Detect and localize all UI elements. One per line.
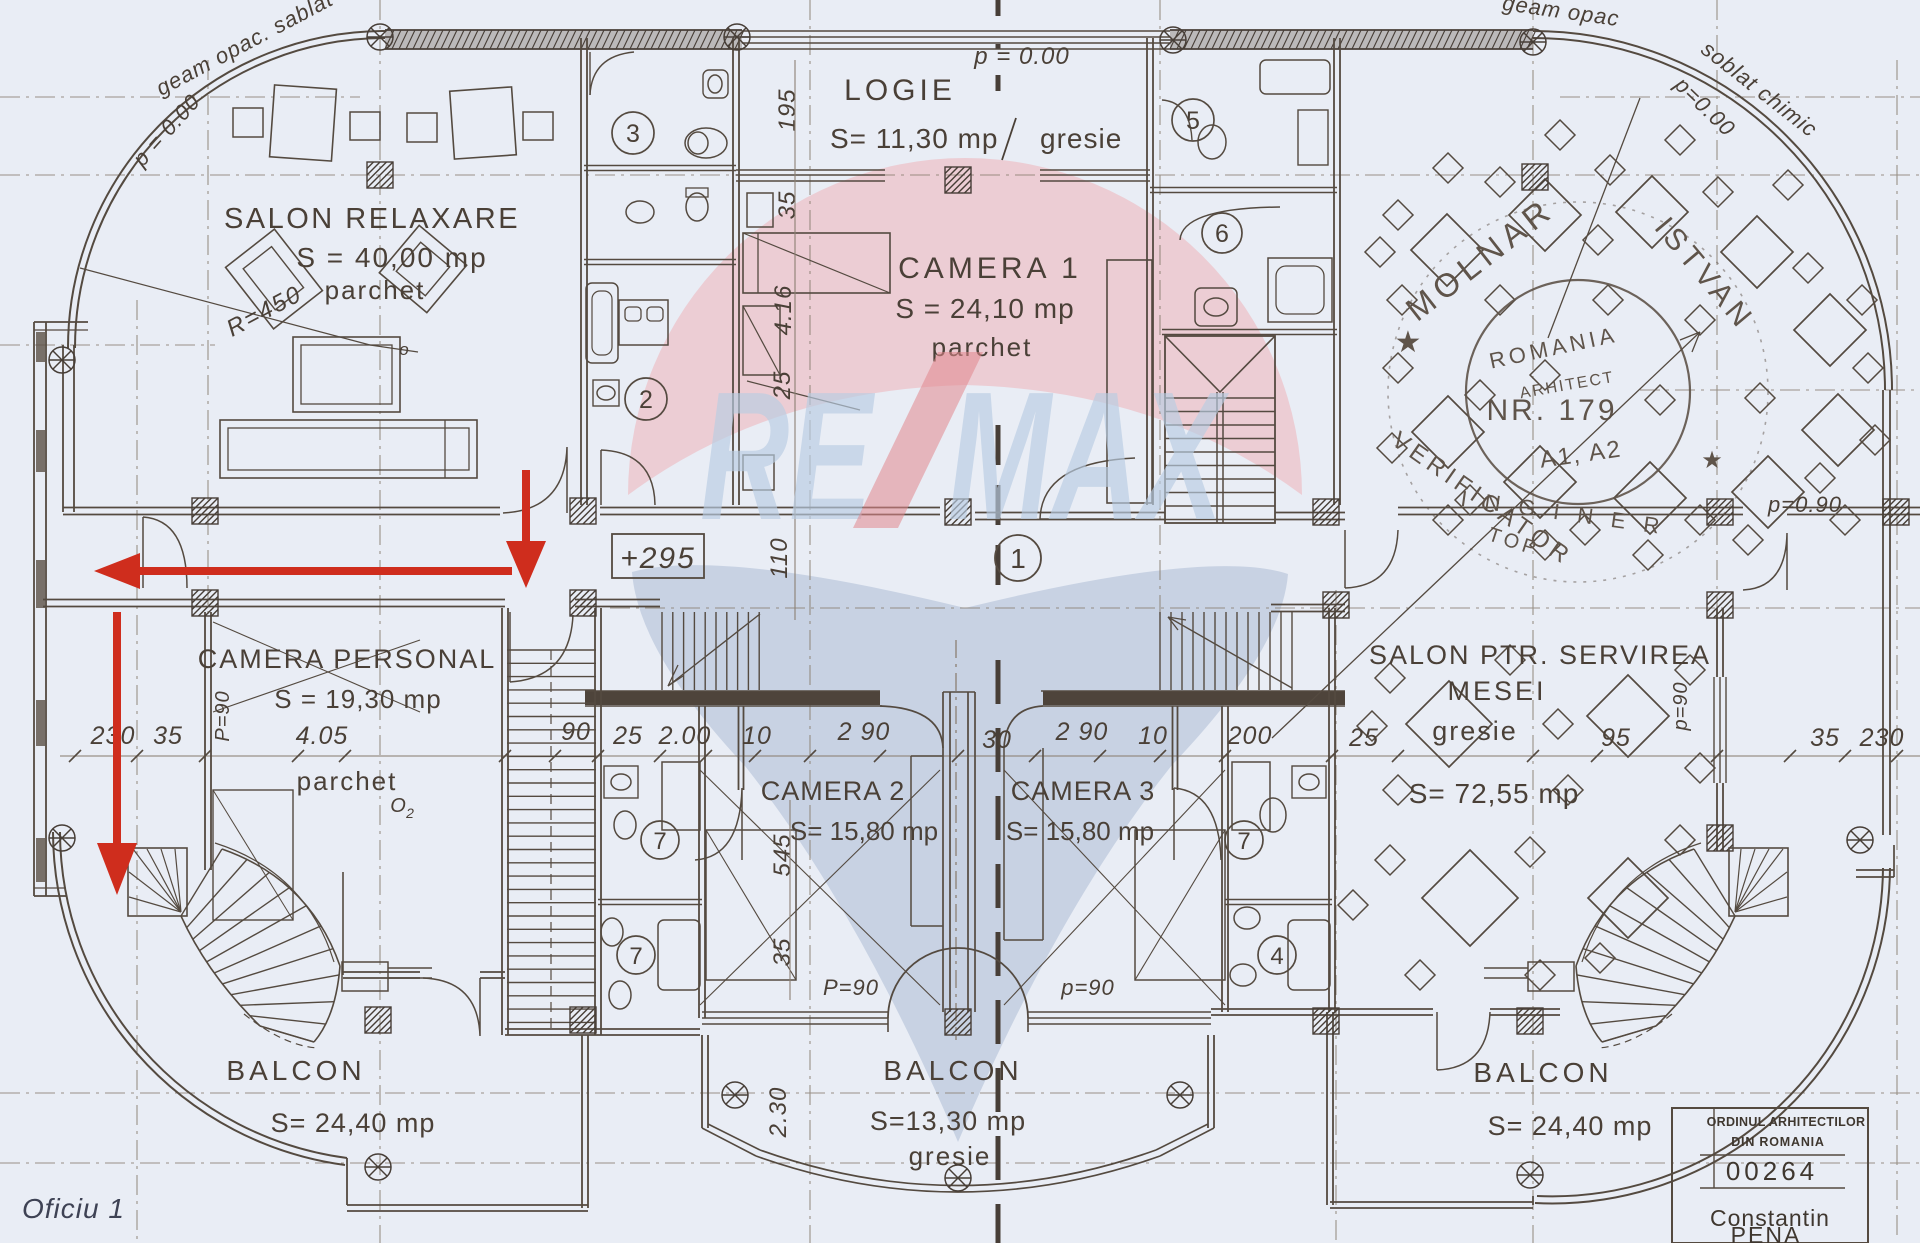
svg-text:5: 5	[1186, 107, 1200, 135]
svg-text:SALON PTR. SERVIREA: SALON PTR. SERVIREA	[1369, 640, 1711, 670]
svg-text:p=90: p=90	[1060, 975, 1115, 1000]
svg-text:S = 40,00 mp: S = 40,00 mp	[296, 242, 487, 273]
svg-text:S= 15,80 mp: S= 15,80 mp	[790, 816, 938, 846]
svg-text:Oficiu 1: Oficiu 1	[22, 1193, 125, 1224]
svg-text:ORDINUL ARHITECTILOR: ORDINUL ARHITECTILOR	[1707, 1115, 1866, 1129]
svg-text:10: 10	[742, 722, 772, 750]
svg-text:O: O	[390, 795, 406, 817]
svg-text:BALCON: BALCON	[226, 1055, 365, 1086]
svg-text:230: 230	[1859, 724, 1905, 752]
svg-text:4.16: 4.16	[770, 285, 797, 336]
svg-text:S= 15,80 mp: S= 15,80 mp	[1006, 816, 1154, 846]
svg-text:35: 35	[769, 938, 796, 967]
svg-text:+295: +295	[620, 542, 696, 575]
svg-text:p=0.90: p=0.90	[1767, 492, 1842, 517]
svg-text:gresie: gresie	[909, 1141, 992, 1171]
svg-text:2.00: 2.00	[658, 722, 712, 750]
svg-text:35: 35	[774, 191, 801, 220]
svg-text:30: 30	[982, 726, 1012, 754]
svg-text:S= 24,40 mp: S= 24,40 mp	[1488, 1111, 1653, 1141]
svg-text:parchet: parchet	[325, 275, 426, 305]
svg-text:S=13,30 mp: S=13,30 mp	[870, 1106, 1026, 1136]
svg-text:6: 6	[1215, 220, 1229, 248]
svg-text:230: 230	[90, 722, 136, 750]
svg-text:S = 24,10 mp: S = 24,10 mp	[895, 293, 1074, 324]
svg-text:00264: 00264	[1726, 1156, 1818, 1186]
svg-text:195: 195	[774, 88, 801, 131]
svg-text:MESEI: MESEI	[1447, 676, 1546, 706]
svg-text:o: o	[399, 340, 408, 359]
svg-text:gresie: gresie	[1432, 716, 1518, 746]
svg-text:CAMERA 2: CAMERA 2	[761, 776, 906, 806]
svg-text:25: 25	[612, 722, 643, 750]
svg-text:gresie: gresie	[1040, 123, 1122, 154]
svg-text:S= 24,40 mp: S= 24,40 mp	[271, 1108, 436, 1138]
svg-text:2: 2	[405, 805, 414, 821]
svg-text:95: 95	[1601, 724, 1631, 752]
svg-text:CAMERA 3: CAMERA 3	[1011, 776, 1156, 806]
svg-text:p=90: p=90	[1670, 681, 1692, 731]
svg-text:545: 545	[769, 833, 796, 876]
svg-text:2 90: 2 90	[1055, 718, 1109, 746]
svg-text:3: 3	[626, 120, 640, 148]
svg-text:BALCON: BALCON	[883, 1055, 1022, 1086]
svg-text:7: 7	[653, 828, 666, 855]
svg-text:10: 10	[1138, 722, 1168, 750]
svg-text:200: 200	[1227, 722, 1273, 750]
svg-text:35: 35	[1810, 724, 1840, 752]
svg-text:p = 0.00: p = 0.00	[973, 43, 1069, 70]
svg-text:RE: RE	[700, 353, 875, 558]
svg-text:CAMERA PERSONAL: CAMERA PERSONAL	[198, 644, 497, 674]
svg-text:P=90: P=90	[823, 975, 879, 1000]
svg-text:parchet: parchet	[297, 766, 398, 796]
svg-text:2.30: 2.30	[765, 1087, 792, 1139]
svg-text:4: 4	[1270, 943, 1283, 970]
svg-text:P=90: P=90	[212, 690, 234, 741]
svg-text:4.05: 4.05	[296, 722, 349, 750]
svg-text:S = 19,30 mp: S = 19,30 mp	[274, 684, 441, 714]
svg-text:S= 11,30 mp: S= 11,30 mp	[830, 123, 998, 154]
svg-text:S= 72,55 mp: S= 72,55 mp	[1409, 778, 1580, 809]
svg-text:PENA: PENA	[1731, 1222, 1802, 1243]
svg-text:2 90: 2 90	[837, 718, 891, 746]
svg-text:90: 90	[561, 718, 591, 746]
svg-text:2: 2	[639, 386, 653, 414]
svg-text:MAX: MAX	[948, 353, 1230, 558]
svg-text:25: 25	[1348, 724, 1379, 752]
svg-text:CAMERA 1: CAMERA 1	[898, 252, 1082, 285]
svg-text:LOGIE: LOGIE	[844, 74, 956, 107]
svg-text:7: 7	[1237, 828, 1250, 855]
svg-text:BALCON: BALCON	[1473, 1057, 1612, 1088]
svg-text:★: ★	[1701, 447, 1723, 474]
svg-text:DIN ROMANIA: DIN ROMANIA	[1731, 1135, 1825, 1149]
svg-text:35: 35	[153, 722, 183, 750]
svg-text:NR. 179: NR. 179	[1486, 394, 1617, 427]
svg-text:SALON RELAXARE: SALON RELAXARE	[224, 203, 520, 235]
svg-text:★: ★	[1395, 326, 1422, 359]
svg-text:7: 7	[629, 943, 642, 970]
